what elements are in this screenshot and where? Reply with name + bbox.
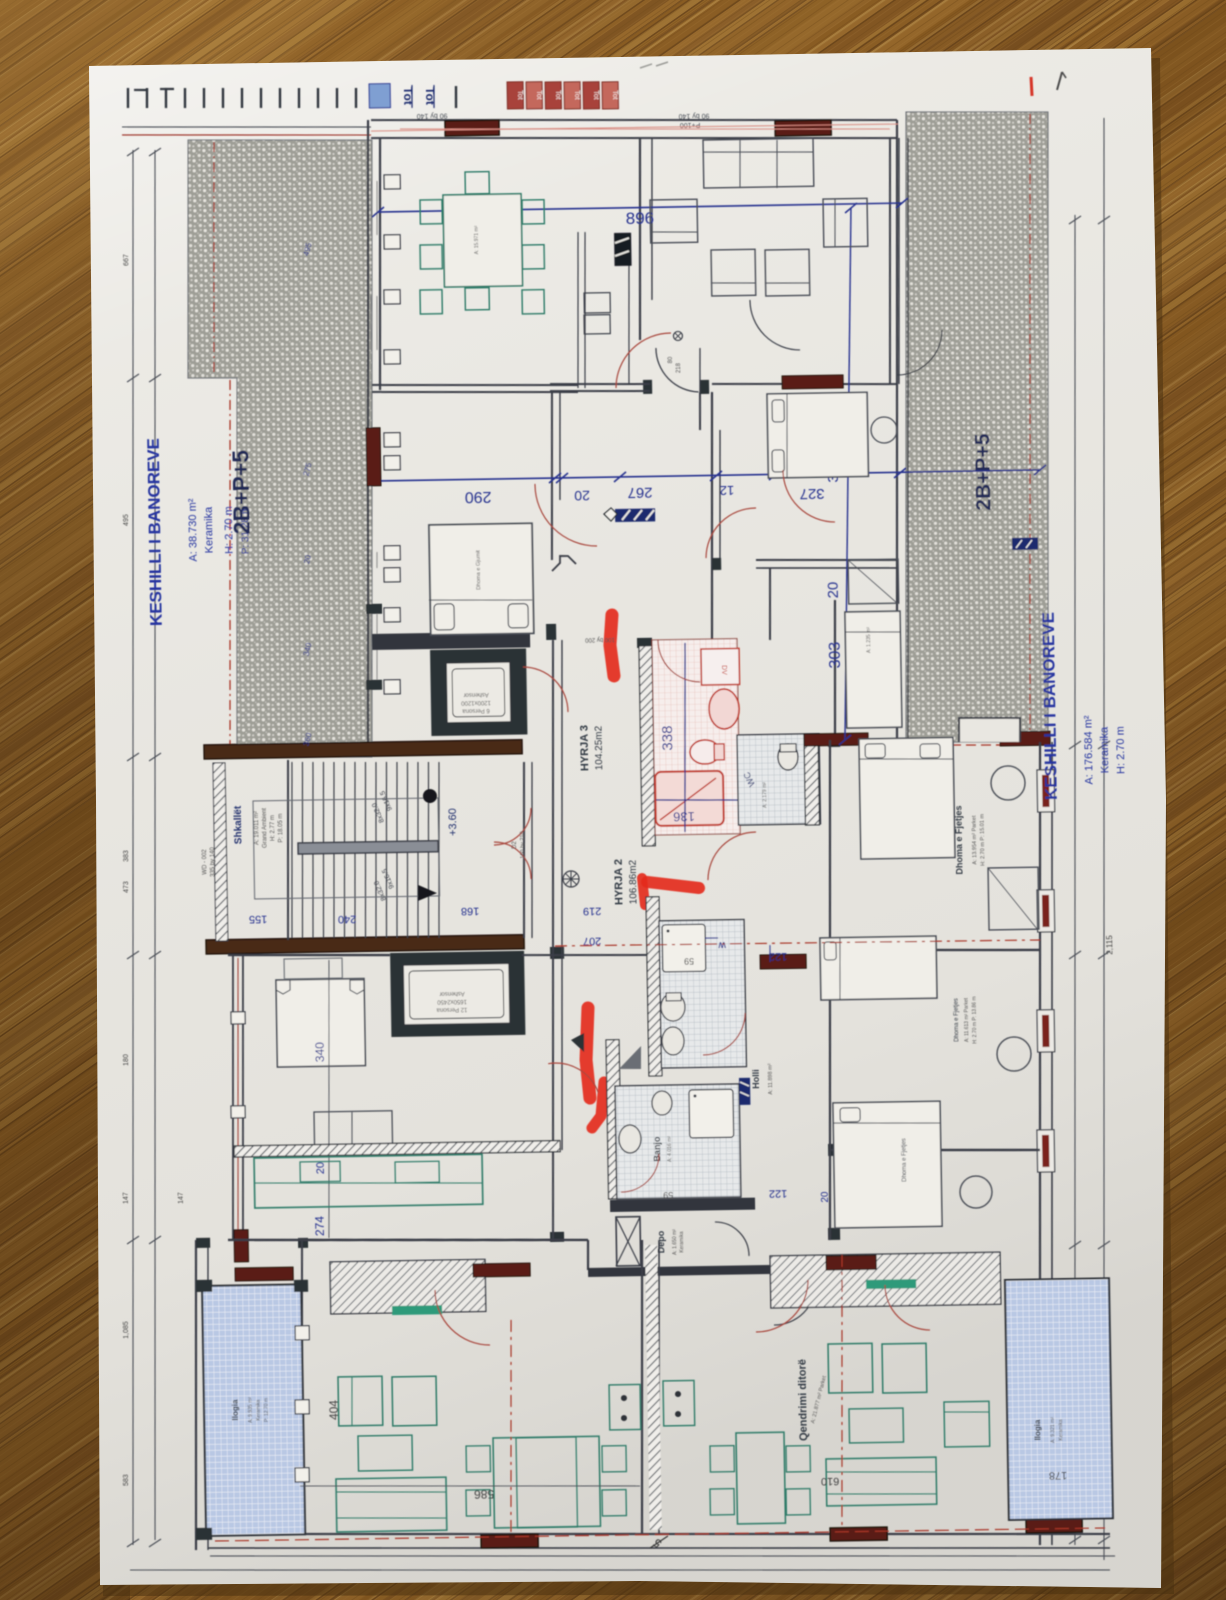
svg-text:404: 404 bbox=[327, 1400, 341, 1421]
svg-text:A: 1.650 m²: A: 1.650 m² bbox=[672, 1229, 678, 1255]
svg-text:Tot: Tot bbox=[573, 90, 580, 100]
svg-text:155: 155 bbox=[249, 913, 268, 925]
svg-text:6 Persona: 6 Persona bbox=[462, 707, 490, 713]
svg-text:20: 20 bbox=[825, 582, 842, 599]
svg-text:59: 59 bbox=[684, 956, 694, 966]
svg-text:100 by 200: 100 by 200 bbox=[584, 636, 614, 643]
svg-text:Ashensor: Ashensor bbox=[439, 990, 464, 996]
svg-text:136: 136 bbox=[673, 809, 695, 824]
svg-text:20: 20 bbox=[315, 1162, 327, 1174]
svg-text:12: 12 bbox=[720, 483, 735, 498]
svg-text:12 Persona: 12 Persona bbox=[436, 1006, 467, 1013]
svg-text:Ilogia: Ilogia bbox=[1033, 1419, 1042, 1441]
svg-text:WD - 002: WD - 002 bbox=[202, 849, 208, 875]
svg-text:H: 2.70 m P: 15.01 m: H: 2.70 m P: 15.01 m bbox=[980, 814, 987, 866]
svg-text:340: 340 bbox=[313, 1042, 327, 1063]
svg-text:Dhoma e Fjetjes: Dhoma e Fjetjes bbox=[954, 998, 961, 1042]
svg-text:90 by 140: 90 by 140 bbox=[417, 112, 448, 120]
svg-text:A: 19.011 m²: A: 19.011 m² bbox=[254, 811, 261, 845]
svg-text:HYRJA 2: HYRJA 2 bbox=[613, 859, 626, 905]
svg-text:H: 2.70 m: H: 2.70 m bbox=[1115, 726, 1128, 774]
svg-text:586: 586 bbox=[474, 1487, 495, 1501]
svg-text:1200x1200: 1200x1200 bbox=[460, 699, 490, 706]
svg-text:Tot: Tot bbox=[535, 90, 542, 100]
svg-text:180: 180 bbox=[123, 1054, 130, 1066]
svg-text:+3.60: +3.60 bbox=[447, 808, 459, 836]
svg-text:DV: DV bbox=[720, 665, 727, 675]
svg-text:1,085: 1,085 bbox=[123, 1321, 130, 1339]
svg-text:Keramika: Keramika bbox=[679, 1231, 685, 1252]
svg-text:P: 12.70 m: P: 12.70 m bbox=[264, 1398, 270, 1422]
svg-text:H: 2.70 m P: 13.86 m: H: 2.70 m P: 13.86 m bbox=[972, 996, 979, 1043]
svg-text:P: 18.05 m: P: 18.05 m bbox=[278, 813, 284, 842]
svg-text:473: 473 bbox=[123, 881, 130, 893]
svg-text:A: 4.016 m²: A: 4.016 m² bbox=[667, 1136, 673, 1162]
svg-text:A: 2.179 m²: A: 2.179 m² bbox=[762, 782, 768, 808]
svg-text:335 by 140: 335 by 140 bbox=[210, 847, 217, 877]
svg-text:Banjo: Banjo bbox=[652, 1136, 662, 1162]
svg-text:Keramika: Keramika bbox=[1058, 1419, 1064, 1440]
svg-text:Depo: Depo bbox=[656, 1230, 666, 1253]
svg-text:W: W bbox=[718, 940, 726, 949]
svg-text:667: 667 bbox=[123, 254, 130, 266]
svg-text:Tot: Tot bbox=[423, 87, 437, 105]
svg-text:Keramika: Keramika bbox=[203, 506, 216, 554]
svg-text:290: 290 bbox=[465, 488, 492, 505]
svg-text:2B+P+5: 2B+P+5 bbox=[971, 433, 995, 511]
svg-text:Keramika: Keramika bbox=[256, 1399, 262, 1420]
svg-text:Tot: Tot bbox=[516, 90, 523, 100]
svg-text:Shkallët: Shkallët bbox=[233, 805, 245, 844]
svg-text:A: 11.898 m²: A: 11.898 m² bbox=[768, 1063, 775, 1094]
svg-text:267: 267 bbox=[627, 484, 652, 501]
svg-text:178: 178 bbox=[1049, 1469, 1068, 1481]
svg-text:Dhoma e Fjetjes: Dhoma e Fjetjes bbox=[953, 805, 964, 874]
svg-text:2B+P+5: 2B+P+5 bbox=[227, 450, 254, 535]
svg-text:A: 13.954 m² Parket: A: 13.954 m² Parket bbox=[972, 815, 979, 864]
svg-text:338: 338 bbox=[659, 725, 676, 750]
svg-text:A: 11.613 m² Parket: A: 11.613 m² Parket bbox=[964, 997, 971, 1042]
svg-text:147: 147 bbox=[123, 1192, 130, 1204]
svg-text:59: 59 bbox=[663, 1190, 673, 1200]
svg-text:Grand Ambient: Grand Ambient bbox=[262, 808, 269, 848]
svg-text:147: 147 bbox=[178, 1192, 185, 1204]
svg-text:383: 383 bbox=[123, 850, 130, 862]
svg-text:Ilogia: Ilogia bbox=[231, 1399, 240, 1421]
svg-text:104.25m2: 104.25m2 bbox=[594, 725, 606, 770]
svg-text:122: 122 bbox=[769, 950, 788, 962]
svg-text:A: 9.321 m²: A: 9.321 m² bbox=[1050, 1417, 1056, 1443]
svg-text:1650x2450: 1650x2450 bbox=[436, 998, 466, 1005]
svg-text:160 by 210: 160 by 210 bbox=[520, 831, 526, 858]
svg-text:Tot: Tot bbox=[554, 90, 561, 100]
svg-text:20: 20 bbox=[574, 488, 590, 504]
svg-text:80: 80 bbox=[668, 356, 674, 363]
svg-text:D2: D2 bbox=[512, 840, 518, 848]
svg-text:A: 38.730 m²: A: 38.730 m² bbox=[186, 498, 199, 562]
svg-text:90 by 140: 90 by 140 bbox=[678, 112, 709, 120]
svg-text:327: 327 bbox=[799, 485, 824, 502]
svg-text:KESHILLI I BANOREVE: KESHILLI I BANOREVE bbox=[1038, 612, 1060, 800]
svg-text:168: 168 bbox=[461, 905, 480, 917]
svg-text:274: 274 bbox=[313, 1216, 327, 1237]
svg-text:A: 1.235 m²: A: 1.235 m² bbox=[866, 627, 872, 653]
svg-text:583: 583 bbox=[123, 1474, 130, 1486]
svg-text:Keramika: Keramika bbox=[1099, 726, 1112, 774]
svg-text:2,115: 2,115 bbox=[1105, 935, 1114, 955]
svg-text:Tot: Tot bbox=[611, 90, 618, 100]
svg-text:A: 9.935 m²: A: 9.935 m² bbox=[248, 1397, 254, 1423]
svg-text:Ashensor: Ashensor bbox=[463, 691, 488, 697]
svg-text:218: 218 bbox=[676, 362, 682, 373]
svg-text:Dhoma e Gjumit: Dhoma e Gjumit bbox=[476, 550, 483, 590]
svg-text:HYRJA 3: HYRJA 3 bbox=[579, 725, 592, 771]
svg-text:H: 2.77 m: H: 2.77 m bbox=[270, 815, 276, 841]
svg-text:Tot: Tot bbox=[592, 90, 599, 100]
svg-text:495: 495 bbox=[123, 514, 130, 526]
svg-text:610: 610 bbox=[821, 1475, 840, 1487]
svg-text:Qendrimi ditorë: Qendrimi ditorë bbox=[796, 1359, 809, 1441]
svg-text:240: 240 bbox=[338, 913, 357, 925]
svg-text:122: 122 bbox=[769, 1187, 788, 1199]
svg-text:KESHILLI I BANOREVE: KESHILLI I BANOREVE bbox=[143, 438, 165, 626]
svg-text:303: 303 bbox=[827, 642, 844, 669]
svg-text:A: 176.584 m²: A: 176.584 m² bbox=[1082, 715, 1095, 785]
svg-text:219: 219 bbox=[583, 905, 602, 917]
svg-text:Holli: Holli bbox=[751, 1069, 761, 1089]
svg-text:A: 15.971 m²: A: 15.971 m² bbox=[474, 225, 480, 254]
svg-text:Dhoma e Fjetjes: Dhoma e Fjetjes bbox=[902, 1138, 909, 1182]
svg-text:Tot: Tot bbox=[401, 87, 415, 105]
